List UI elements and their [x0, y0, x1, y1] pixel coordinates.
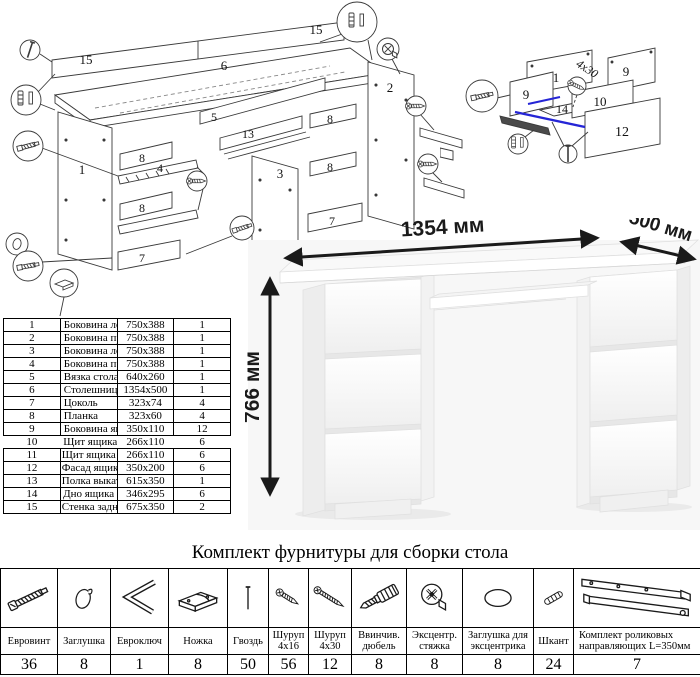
- hardware-name: Ввинчив. дюбель: [352, 628, 407, 655]
- part-qty: 4: [174, 410, 231, 423]
- part-row: 13Полка выкатная615x3501: [4, 475, 231, 488]
- part-row: 9Боковина ящика350x11012: [4, 423, 231, 436]
- part-num: 8: [4, 410, 61, 423]
- hardware-qty: 36: [1, 655, 58, 675]
- assembly-instruction-page: 15 15 6 5 13 3: [0, 0, 700, 677]
- euro-screw-icon: [1, 569, 58, 628]
- screw-16-icon: [269, 569, 309, 628]
- part-num: 3: [4, 345, 61, 358]
- hardware-qty: 56: [269, 655, 309, 675]
- hardware-name: Шкант: [534, 628, 574, 655]
- hardware-name: Заглушка для эксцентрика: [463, 628, 534, 655]
- part-qty: 6: [174, 436, 231, 449]
- hardware-name: Заглушка: [58, 628, 111, 655]
- part-name: Цоколь: [60, 397, 117, 410]
- part-qty: 6: [174, 449, 231, 462]
- part-size: 350x110: [117, 423, 174, 436]
- part-label: 4: [157, 161, 163, 175]
- part-label: 1: [79, 162, 86, 177]
- part-size: 750x388: [117, 358, 174, 371]
- parts-list-table: 1Боковина левая750x38812Боковина правая7…: [3, 318, 231, 514]
- part-name: Боковина левая: [60, 319, 117, 332]
- part-qty: 1: [174, 345, 231, 358]
- part-row: 7Цоколь323x744: [4, 397, 231, 410]
- hardware-names-row: ЕвровинтЗаглушкаЕвроключНожкаГвоздьШуруп…: [1, 628, 700, 655]
- part-qty: 1: [174, 332, 231, 345]
- part-size: 750x388: [117, 345, 174, 358]
- part-row: 1Боковина левая750x3881: [4, 319, 231, 332]
- part-name: Боковина ящика: [60, 423, 117, 436]
- part-qty: 12: [174, 423, 231, 436]
- part-qty: 1: [174, 475, 231, 488]
- part-label: 8: [139, 201, 145, 215]
- screw-30-icon: [309, 569, 352, 628]
- part-size: 350x200: [117, 462, 174, 475]
- part-row: 5Вязка стола640x2601: [4, 371, 231, 384]
- hardware-name: Эксцентр. стяжка: [407, 628, 463, 655]
- part-num: 15: [4, 501, 61, 514]
- hex-key-icon: [111, 569, 169, 628]
- hardware-name: Гвоздь: [228, 628, 269, 655]
- part-label: 9: [623, 64, 630, 79]
- part-label: 8: [139, 151, 145, 165]
- hardware-qty: 7: [574, 655, 700, 675]
- cap-icon: [58, 569, 111, 628]
- hardware-name: Шуруп 4x16: [269, 628, 309, 655]
- part-name: Планка: [60, 410, 117, 423]
- nail-icon: [228, 569, 269, 628]
- part-num: 13: [4, 475, 61, 488]
- part-num: 6: [4, 384, 61, 397]
- keyboard-shelf-13: 13: [220, 116, 310, 159]
- part-label: 12: [615, 125, 629, 140]
- part-qty: 1: [174, 358, 231, 371]
- wood-dowel-icon: [534, 569, 574, 628]
- hardware-kit-title: Комплект фурнитуры для сборки стола: [0, 541, 700, 565]
- part-qty: 1: [174, 384, 231, 397]
- hardware-name: Евровинт: [1, 628, 58, 655]
- part-row: 6Столешница1354x5001: [4, 384, 231, 397]
- hardware-qty: 50: [228, 655, 269, 675]
- hardware-name: Евроключ: [111, 628, 169, 655]
- part-name: Фасад ящика: [60, 462, 117, 475]
- part-row: 2Боковина правая750x3881: [4, 332, 231, 345]
- part-qty: 1: [174, 319, 231, 332]
- cam-cap-icon: [463, 569, 534, 628]
- part-size: 266x110: [117, 449, 174, 462]
- part-qty: 2: [174, 501, 231, 514]
- part-num: 1: [4, 319, 61, 332]
- part-label: 13: [242, 127, 254, 141]
- part-label: 8: [327, 160, 333, 174]
- part-size: 675x350: [117, 501, 174, 514]
- foot-icon: [169, 569, 228, 628]
- part-label: 3: [277, 166, 284, 181]
- part-row: 4Боковина правая750x3881: [4, 358, 231, 371]
- hardware-qty: 8: [58, 655, 111, 675]
- part-qty: 1: [174, 371, 231, 384]
- part-num: 5: [4, 371, 61, 384]
- part-name: Щит ящика задний: [60, 449, 117, 462]
- part-row: 8Планка323x604: [4, 410, 231, 423]
- part-label: 6: [221, 58, 228, 73]
- hardware-qty: 8: [169, 655, 228, 675]
- hardware-name: Комплект роликовых направляющих L=350мм: [574, 628, 700, 655]
- part-size: 323x60: [117, 410, 174, 423]
- part-num: 9: [4, 423, 61, 436]
- drawer-exploded-diagram: 11 9 9 14 10 12 4x30: [440, 40, 700, 222]
- part-label: 14: [556, 102, 568, 116]
- height-dimension: 766 мм: [245, 351, 264, 423]
- part-qty: 6: [174, 462, 231, 475]
- part-name: Дно ящика: [60, 488, 117, 501]
- part-qty: 6: [174, 488, 231, 501]
- cam-lock-icon: [407, 569, 463, 628]
- part-name: Боковина правая: [60, 358, 117, 371]
- side-panel-2: 2: [368, 62, 414, 229]
- hardware-name: Шуруп 4x30: [309, 628, 352, 655]
- part-label: 9: [523, 87, 530, 102]
- dowel-screw-icon: [352, 569, 407, 628]
- part-name: Боковина левая: [60, 345, 117, 358]
- part-name: Столешница: [60, 384, 117, 397]
- part-size: 1354x500: [117, 384, 174, 397]
- hardware-qty: 8: [463, 655, 534, 675]
- part-size: 323x74: [117, 397, 174, 410]
- part-row: 10Щит ящика передний266x1106: [4, 436, 231, 449]
- part-size: 266x110: [117, 436, 174, 449]
- part-row: 3Боковина левая750x3881: [4, 345, 231, 358]
- hardware-qty: 8: [407, 655, 463, 675]
- part-num: 12: [4, 462, 61, 475]
- width-dimension: 1354 мм: [400, 218, 485, 242]
- part-size: 750x388: [117, 319, 174, 332]
- part-num: 11: [4, 449, 61, 462]
- part-size: 346x295: [117, 488, 174, 501]
- side-panel-1: 1: [58, 112, 112, 270]
- hardware-kit-table: ЕвровинтЗаглушкаЕвроключНожкаГвоздьШуруп…: [0, 568, 700, 675]
- hardware-qty: 1: [111, 655, 169, 675]
- part-size: 750x388: [117, 332, 174, 345]
- part-name: Полка выкатная: [60, 475, 117, 488]
- part-label: 5: [211, 110, 217, 124]
- desk-render: 1354 мм 500 мм 766 мм: [245, 218, 700, 540]
- part-num: 7: [4, 397, 61, 410]
- part-size: 615x350: [117, 475, 174, 488]
- part-label: 8: [327, 112, 333, 126]
- part-num: 2: [4, 332, 61, 345]
- left-pedestal-parts: 8 4 8 7: [118, 142, 198, 270]
- part-name: Стенка задняя: [60, 501, 117, 514]
- part-name: Щит ящика передний: [60, 436, 117, 449]
- hardware-icons-row: [1, 569, 700, 628]
- drawer-slide-icon: [574, 569, 700, 628]
- part-label: 15: [80, 52, 93, 67]
- part-label: 7: [139, 251, 145, 265]
- part-qty: 4: [174, 397, 231, 410]
- part-num: 10: [4, 436, 61, 449]
- part-label: 10: [594, 94, 607, 109]
- hardware-qty: 24: [534, 655, 574, 675]
- part-row: 14Дно ящика346x2956: [4, 488, 231, 501]
- hardware-quantities-row: 36818505612888247: [1, 655, 700, 675]
- hardware-qty: 12: [309, 655, 352, 675]
- part-num: 4: [4, 358, 61, 371]
- part-row: 11Щит ящика задний266x1106: [4, 449, 231, 462]
- part-row: 15Стенка задняя675x3502: [4, 501, 231, 514]
- part-size: 640x260: [117, 371, 174, 384]
- part-row: 12Фасад ящика350x2006: [4, 462, 231, 475]
- part-name: Боковина правая: [60, 332, 117, 345]
- part-num: 14: [4, 488, 61, 501]
- part-label: 2: [387, 80, 394, 95]
- hardware-qty: 8: [352, 655, 407, 675]
- part-label: 15: [310, 22, 323, 37]
- hardware-name: Ножка: [169, 628, 228, 655]
- part-name: Вязка стола: [60, 371, 117, 384]
